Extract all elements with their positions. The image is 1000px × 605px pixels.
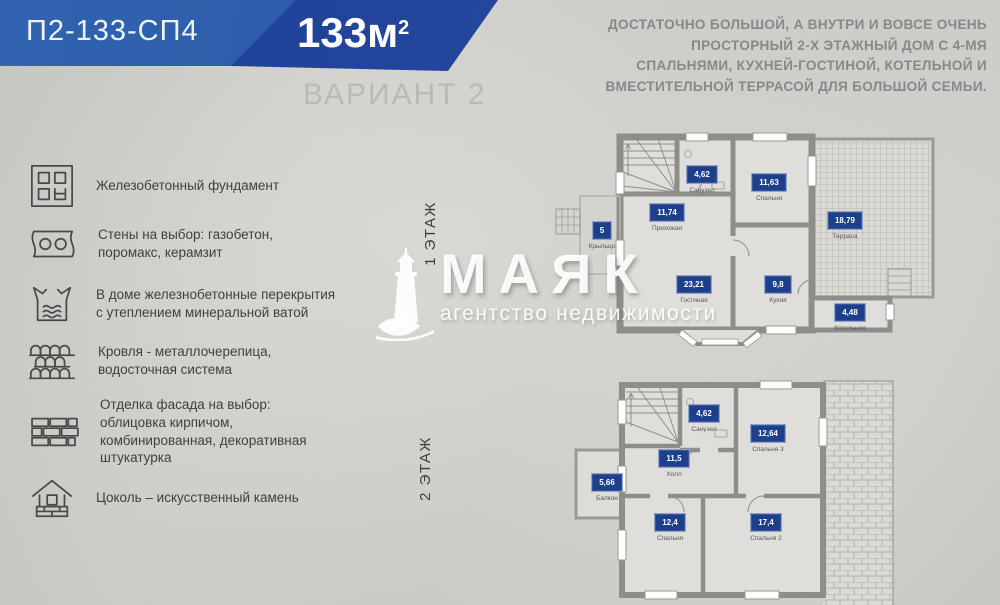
room-bedroom-3: 12,64 Спальня 3	[736, 424, 800, 453]
room-area-badge: 4,48	[834, 303, 866, 322]
feature-text: Цоколь – искусственный камень	[96, 489, 299, 507]
room-area-badge: 5	[592, 221, 612, 240]
room-name-label: Спальня	[657, 535, 683, 542]
room-name-label: Терраса	[833, 233, 858, 240]
plan-code: П2-133-СП4	[26, 15, 199, 48]
room-hall: 11,5 Холл	[642, 449, 706, 478]
feature-roof: Кровля - металлочерепица, водосточная си…	[28, 341, 373, 381]
room-name-label: Кухня	[769, 297, 786, 304]
room-name-label: Прихожая	[652, 225, 682, 232]
room-name-label: Спальня	[756, 195, 782, 202]
feature-text: В доме железнобетонные перекрытия с утеп…	[96, 286, 335, 322]
feature-text: Отделка фасада на выбор: облицовка кирпи…	[100, 396, 307, 467]
total-area-sup: 2	[398, 17, 409, 39]
total-area: 133м2	[297, 9, 409, 57]
foundation-icon	[28, 163, 76, 209]
plinth-house-icon	[28, 474, 76, 522]
room-bathroom-1: 4,62 Санузел	[670, 165, 734, 194]
agency-watermark: МАЯК агентство недвижимости	[376, 246, 717, 341]
brand-name: МАЯК	[440, 246, 717, 302]
room-bathroom-2: 4,62 Санузел	[672, 404, 736, 433]
lighthouse-icon	[376, 246, 436, 341]
room-area-badge: 4,62	[688, 404, 720, 423]
description-text: ДОСТАТОЧНО БОЛЬШОЙ, А ВНУТРИ И ВОВСЕ ОЧЕ…	[557, 15, 987, 98]
room-area-badge: 9,8	[764, 275, 791, 294]
room-bedroom: 12,4 Спальня	[638, 513, 702, 542]
room-bedroom-1: 11,63 Спальня	[737, 173, 801, 202]
room-area-badge: 11,63	[751, 173, 787, 192]
feature-slab: В доме железнобетонные перекрытия с утеп…	[28, 281, 373, 327]
room-hallway: 11,74 Прихожая	[635, 203, 699, 232]
floor-plan-2: 4,62 Санузел 12,64 Спальня 3 11,5 Холл 5…	[550, 378, 945, 605]
feature-text: Кровля - металлочерепица, водосточная си…	[98, 343, 271, 379]
wall-blocks-icon	[28, 226, 78, 262]
room-area-badge: 12,64	[750, 424, 786, 443]
room-name-label: Санузел	[691, 426, 716, 433]
brick-facade-icon	[28, 411, 80, 453]
room-area-badge: 18,79	[827, 211, 863, 230]
room-name-label: Спальня 2	[750, 535, 782, 542]
feature-facade: Отделка фасада на выбор: облицовка кирпи…	[28, 396, 373, 467]
room-area-badge: 17,4	[750, 513, 782, 532]
room-kitchen: 9,8 Кухня	[746, 275, 810, 304]
brand-tagline: агентство недвижимости	[440, 302, 717, 326]
floor-slab-icon	[28, 281, 76, 327]
room-bedroom-2: 17,4 Спальня 2	[734, 513, 798, 542]
flyer-page: П2-133-СП4 133м2 ВАРИАНТ 2 ДОСТАТОЧНО БО…	[0, 0, 1000, 605]
floor-2-label: 2 ЭТАЖ	[417, 436, 434, 501]
room-terrace: 18,79 Терраса	[813, 211, 877, 240]
room-area-badge: 11,5	[658, 449, 689, 468]
room-name-label: Холл	[666, 471, 681, 478]
room-area-badge: 11,74	[649, 203, 685, 222]
room-name-label: Балкон	[596, 495, 618, 502]
room-name-label: Санузел	[689, 187, 714, 194]
feature-plinth: Цоколь – искусственный камень	[28, 474, 373, 522]
room-name-label: Спальня 3	[752, 446, 784, 453]
room-area-badge: 4,62	[686, 165, 718, 184]
room-area-badge: 12,4	[654, 513, 686, 532]
room-area-badge: 5,66	[591, 473, 623, 492]
room-name-label: Котельная	[834, 325, 865, 332]
feature-foundation: Железобетонный фундамент	[28, 163, 373, 209]
total-area-value: 133м	[297, 9, 398, 56]
room-balcony: 5,66 Балкон	[575, 473, 639, 502]
feature-text: Стены на выбор: газобетон, поромакс, кер…	[98, 226, 273, 262]
variant-label: ВАРИАНТ 2	[303, 78, 487, 112]
room-boiler: 4,48 Котельная	[818, 303, 882, 332]
feature-walls: Стены на выбор: газобетон, поромакс, кер…	[28, 226, 373, 262]
feature-text: Железобетонный фундамент	[96, 177, 279, 195]
roof-tiles-icon	[28, 341, 78, 381]
